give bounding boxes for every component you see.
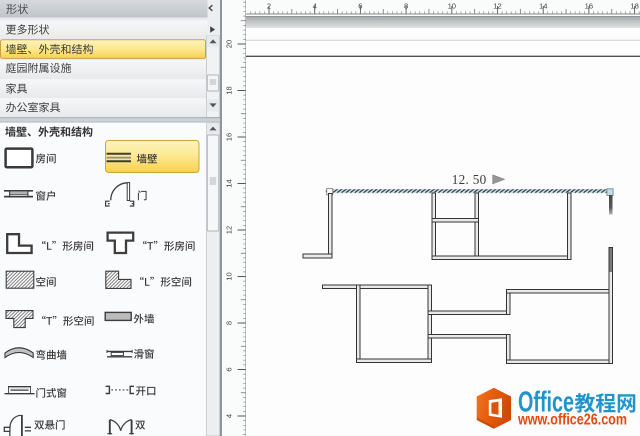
svg-text:12: 12 <box>493 1 501 10</box>
svg-text:16: 16 <box>585 1 593 10</box>
svg-text:10: 10 <box>448 1 456 10</box>
svg-text:4: 4 <box>313 1 317 10</box>
svg-text:18: 18 <box>225 86 234 94</box>
svg-text:6: 6 <box>225 367 234 371</box>
svg-text:6: 6 <box>358 1 362 10</box>
svg-text:14: 14 <box>539 1 547 10</box>
svg-text:4: 4 <box>225 414 234 418</box>
svg-text:14: 14 <box>225 179 234 187</box>
svg-text:8: 8 <box>225 321 234 325</box>
svg-text:20: 20 <box>225 40 234 48</box>
svg-text:16: 16 <box>225 133 234 141</box>
svg-text:2: 2 <box>267 1 271 10</box>
svg-text:8: 8 <box>404 1 408 10</box>
svg-text:12. 50: 12. 50 <box>452 172 487 187</box>
svg-text:10: 10 <box>225 272 234 280</box>
svg-text:12: 12 <box>225 226 234 234</box>
svg-text:18: 18 <box>630 1 638 10</box>
svg-text:www.office26.com: www.office26.com <box>517 412 627 429</box>
